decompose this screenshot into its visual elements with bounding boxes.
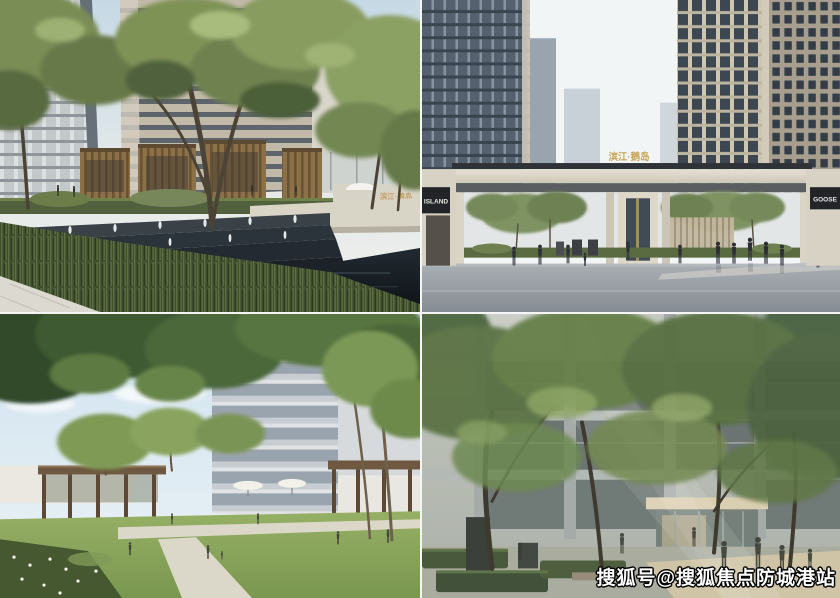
water-feature-illustration: 滨江·鹅岛 — [0, 0, 420, 312]
courtyard-illustration — [422, 314, 840, 598]
turnstiles — [556, 240, 598, 256]
render-tree-courtyard — [422, 314, 840, 598]
lawn-garden-illustration — [0, 314, 420, 598]
island-sign-text: ISLAND — [424, 198, 448, 205]
goose-sign-text: GOOSE — [813, 196, 837, 203]
left-wall: ISLAND — [422, 169, 456, 266]
sohu-watermark: 搜狐号@搜狐焦点防城港站 — [596, 563, 836, 590]
collage: 滨江·鹅岛 — [0, 0, 840, 598]
render-entrance-gate: 滨江·鹅岛 — [422, 0, 840, 312]
collage-grid: 滨江·鹅岛 — [0, 0, 840, 598]
render-central-lawn-garden — [0, 314, 420, 598]
entrance-gate-illustration: 滨江·鹅岛 — [422, 0, 840, 312]
right-wall: GOOSE — [806, 169, 840, 266]
gate-sign-text: 滨江·鹅岛 — [608, 151, 649, 163]
render-water-feature-plaza: 滨江·鹅岛 — [0, 0, 420, 312]
